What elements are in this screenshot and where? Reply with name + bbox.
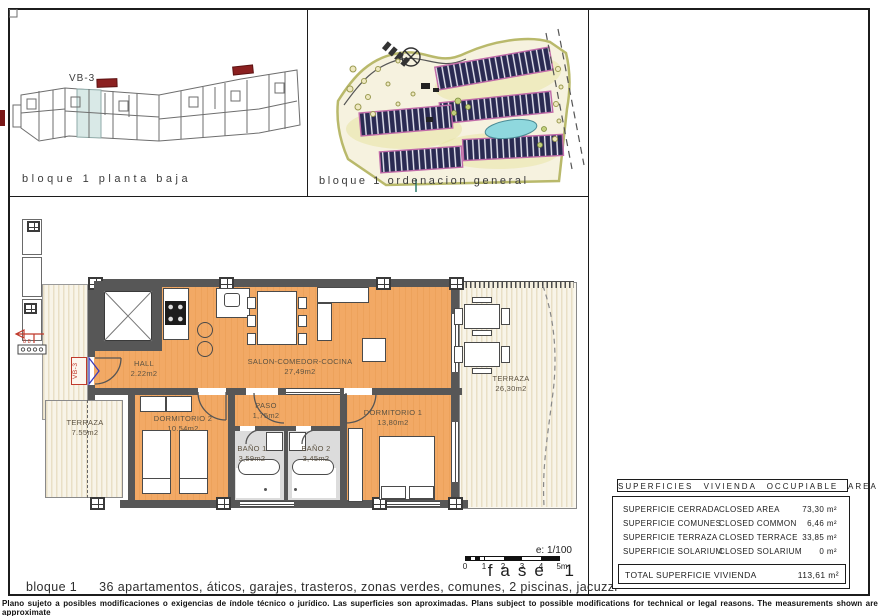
drain-dot xyxy=(294,488,297,491)
panel-tl-caption: bloque 1 planta baja xyxy=(22,173,191,185)
areas-table-title: SUPERFICIES VIVIENDA OCCUPIABLE AREA xyxy=(617,479,848,492)
pillow xyxy=(409,486,434,499)
sofa-back xyxy=(317,287,369,303)
door-gap xyxy=(198,388,226,395)
room-label-bano1: BAÑO 13,59m2 xyxy=(227,444,277,464)
phase-label: fase 1 xyxy=(430,561,582,581)
terrace-left-floor xyxy=(45,400,123,498)
door-gap xyxy=(246,388,278,395)
hob-icon xyxy=(165,301,186,325)
table-row: SUPERFICIE TERRAZACLOSED TERRACE33,85 m² xyxy=(613,533,849,545)
site-plan-sketch xyxy=(308,9,587,195)
plan-sheet: VB-3 bloque 1 planta baja xyxy=(0,0,880,616)
room-label-salon: SALON-COMEDOR-COCINA27,49m2 xyxy=(230,357,370,377)
sofa-side xyxy=(317,303,332,341)
edge-red-mark xyxy=(0,110,5,126)
chair-icon xyxy=(472,330,492,336)
divider-vertical-main xyxy=(588,8,589,596)
chair-icon xyxy=(472,297,492,303)
room-label-dormitorio1: DORMITORIO 113,80m2 xyxy=(348,408,438,428)
pillar-icon xyxy=(216,497,231,510)
building-key-sketch: VB-3 xyxy=(9,9,306,179)
pillar-icon xyxy=(448,497,463,510)
wardrobe xyxy=(348,428,363,502)
pillar-icon xyxy=(90,497,105,510)
door-gap xyxy=(240,426,255,431)
window-pane-icon xyxy=(24,303,37,314)
window-interior xyxy=(286,388,340,395)
wall-bedroom1-left xyxy=(340,394,347,504)
elevator-cab xyxy=(104,291,152,341)
door-gap xyxy=(296,426,311,431)
chair-icon xyxy=(247,333,256,345)
room-label-dormitorio2: DORMITORIO 210.54m2 xyxy=(138,414,228,434)
chair-icon xyxy=(247,297,256,309)
wall-mid xyxy=(94,388,462,395)
stool-icon xyxy=(197,341,213,357)
scale-label: e: 1/100 xyxy=(440,545,572,556)
chair-icon xyxy=(247,315,256,327)
table-total-row: TOTAL SUPERFICIE VIVIENDA 113,61 m² xyxy=(618,564,846,584)
pillar-icon xyxy=(449,277,464,290)
panel-tr-caption: bloque 1 ordenacion general xyxy=(319,175,529,187)
chair-icon xyxy=(298,315,307,327)
room-label-terraza-right: TERRAZA26,30m2 xyxy=(476,374,546,394)
terrace-table xyxy=(464,342,500,367)
chair-icon xyxy=(454,346,463,363)
total-value: 113,61 m² xyxy=(798,570,839,580)
panel-planta-baja: VB-3 bloque 1 planta baja xyxy=(9,9,306,179)
chair-icon xyxy=(501,308,510,325)
disclaimer-text: Plano sujeto a posibles modificaciones o… xyxy=(2,599,878,616)
room-label-bano2: BAÑO 23,45m2 xyxy=(291,444,341,464)
chair-icon xyxy=(501,346,510,363)
panel-ordenacion: bloque 1 ordenacion general xyxy=(308,9,587,195)
caption-block: bloque 1 xyxy=(26,580,77,594)
wardrobe xyxy=(166,396,192,412)
divider-horizontal-top xyxy=(8,196,588,197)
terrace-table xyxy=(464,304,500,329)
bed-foot xyxy=(179,478,208,494)
kitchen-sink-icon xyxy=(224,293,240,307)
chair-icon xyxy=(298,333,307,345)
wall-bath-divider xyxy=(284,430,288,502)
chair-icon xyxy=(454,308,463,325)
window-bottom-2 xyxy=(384,501,440,507)
total-label: TOTAL SUPERFICIE VIVIENDA xyxy=(625,570,757,580)
unit-tag-key: VB-3 xyxy=(69,73,95,84)
pillow xyxy=(381,486,406,499)
terrace-railing xyxy=(461,281,574,288)
room-label-paso: PASO1,75m2 xyxy=(236,401,296,421)
terrace-left-dashed-line xyxy=(87,400,88,498)
areas-table-body: SUPERFICIE CERRADACLOSED AREA73,30 m² SU… xyxy=(612,496,850,589)
pillar-icon xyxy=(376,277,391,290)
caption-features: 36 apartamentos, áticos, garajes, traste… xyxy=(99,580,617,594)
table-row: SUPERFICIE SOLARIUMCLOSED SOLARIUM0 m² xyxy=(613,547,849,559)
stool-icon xyxy=(197,322,213,338)
bed-foot xyxy=(142,478,171,494)
table-row: SUPERFICIE CERRADACLOSED AREA73,30 m² xyxy=(613,505,849,517)
adjacent-unit-box xyxy=(22,257,42,297)
window-pane-icon xyxy=(27,221,40,232)
drain-dot xyxy=(264,488,267,491)
room-label-terraza-left: TERRAZA7.55m2 xyxy=(50,418,120,438)
areas-table: SUPERFICIES VIVIENDA OCCUPIABLE AREA SUP… xyxy=(612,478,852,590)
unit-tag-plan: VB-3 xyxy=(71,357,87,385)
room-label-hall: HALL2.22m2 xyxy=(114,359,174,379)
dining-table xyxy=(257,291,297,345)
chair-icon xyxy=(298,297,307,309)
wardrobe xyxy=(140,396,166,412)
window-bottom-1 xyxy=(240,501,294,507)
project-caption: bloque 136 apartamentos, áticos, garajes… xyxy=(26,580,618,594)
window-bedroom1 xyxy=(451,422,459,482)
wall-bedroom2-left xyxy=(128,394,135,504)
door-gap xyxy=(344,388,372,395)
table-row: SUPERFICIE COMUNESCLOSED COMMON6,46 m² xyxy=(613,519,849,531)
